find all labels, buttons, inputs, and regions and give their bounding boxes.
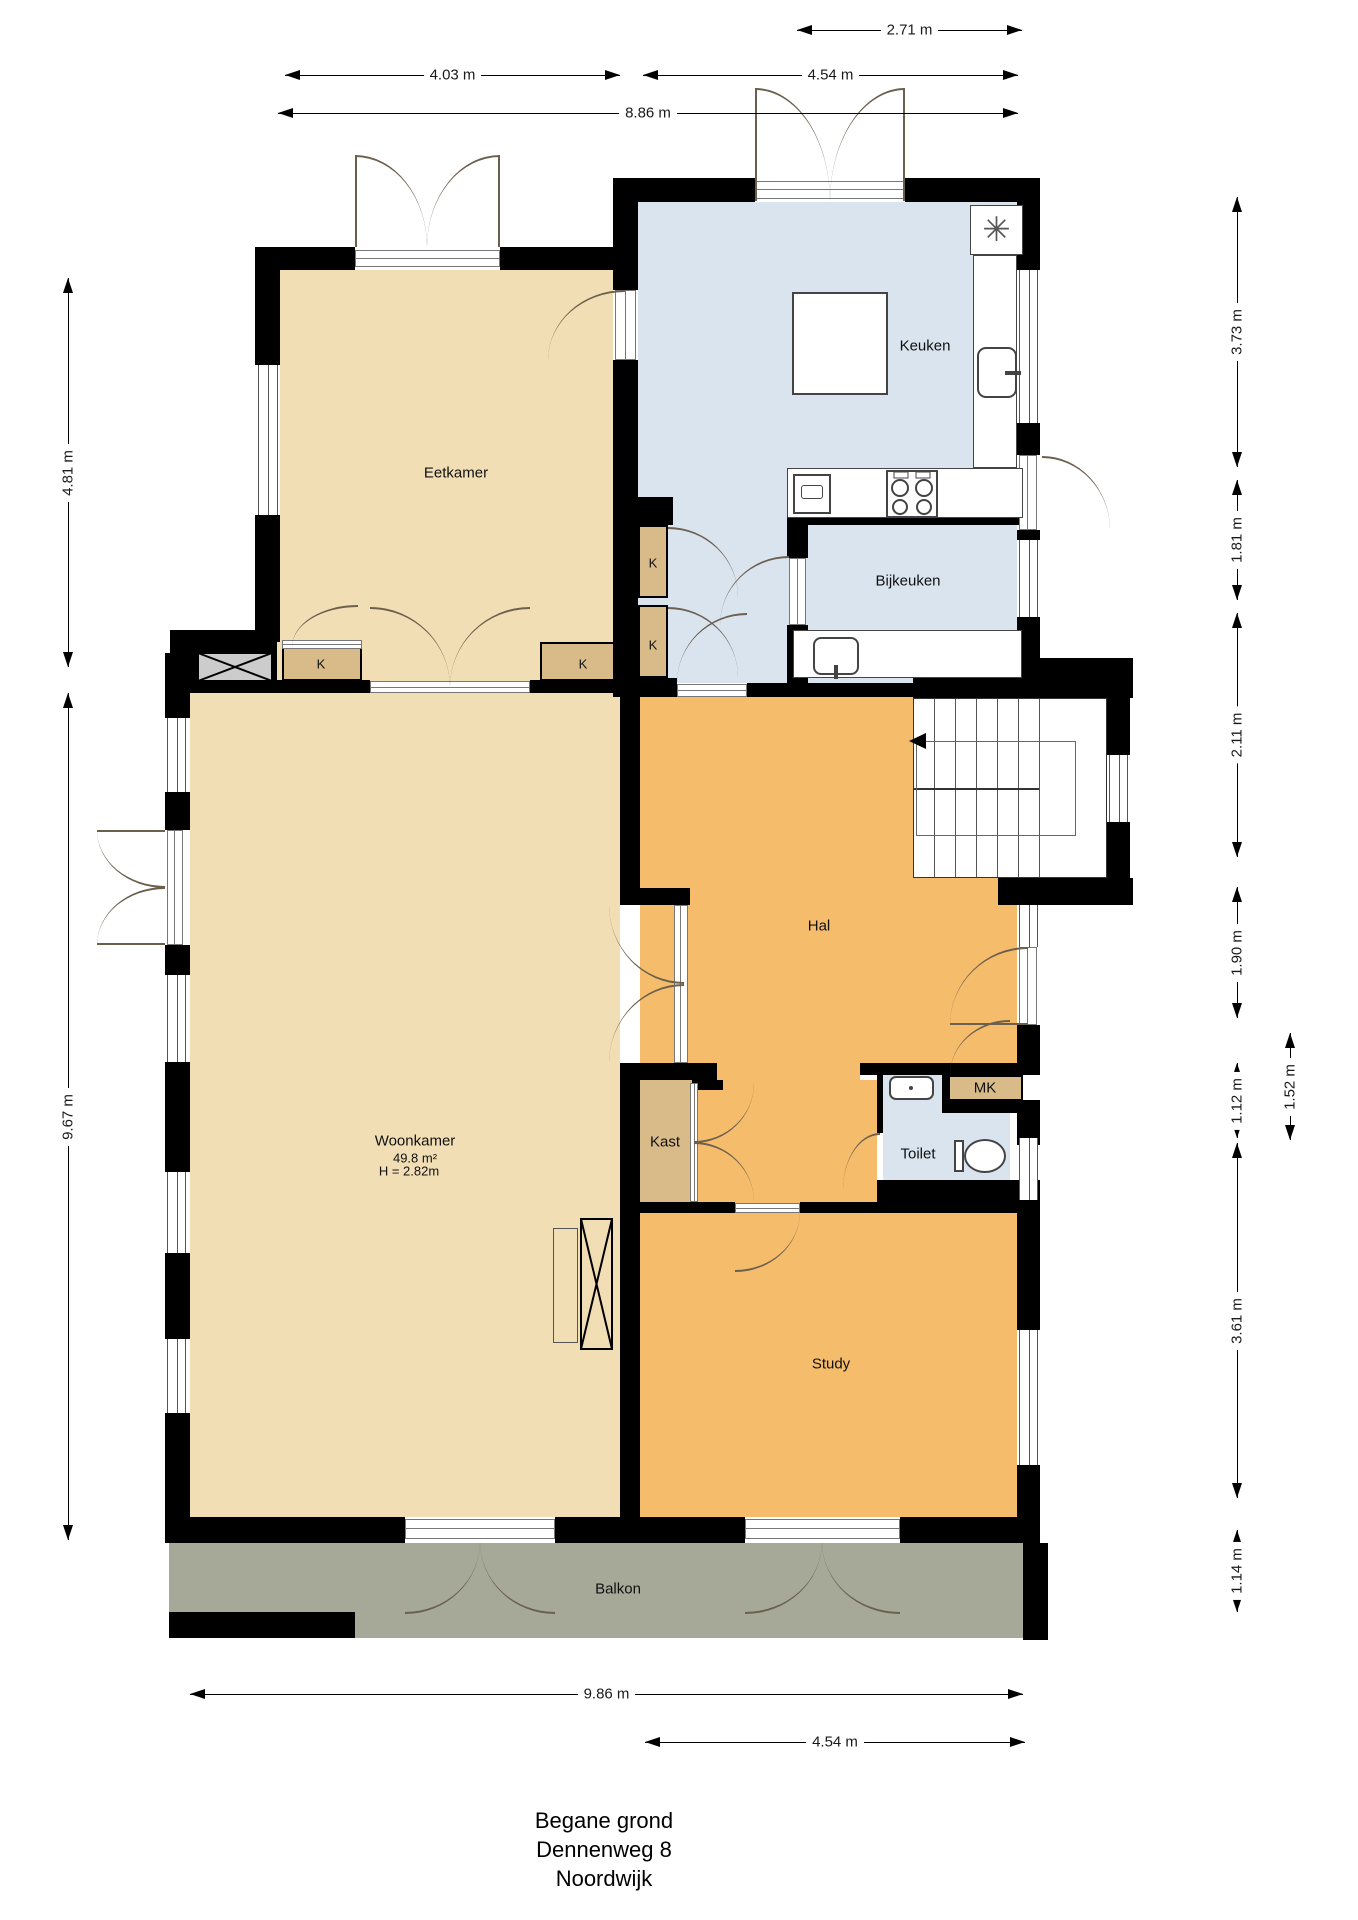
wall xyxy=(877,1075,883,1133)
dim-arrow xyxy=(63,278,73,293)
window xyxy=(167,1339,186,1413)
dim-arrow xyxy=(63,1525,73,1540)
door-arc xyxy=(609,905,684,984)
wall xyxy=(905,178,1040,202)
dim-label: 4.03 m xyxy=(424,67,482,84)
wall xyxy=(913,678,1040,698)
wall xyxy=(800,1202,1040,1213)
hob-icon xyxy=(886,470,938,518)
window xyxy=(1019,1330,1038,1465)
dimension-9_67: 9.67 m xyxy=(60,693,76,1540)
dim-arrow xyxy=(1232,197,1242,212)
room-label-keuken: Keuken xyxy=(900,338,951,355)
dim-arrow xyxy=(1232,842,1242,857)
dimension-8_86: 8.86 m xyxy=(278,105,1018,121)
wall xyxy=(620,1063,717,1080)
dim-label: 1.81 m xyxy=(1229,511,1246,569)
dim-arrow xyxy=(1010,1737,1025,1747)
room-label-woonkamer-height: H = 2.82m xyxy=(379,1164,439,1179)
wall xyxy=(165,653,190,718)
window xyxy=(167,718,186,792)
kitchen-island xyxy=(792,292,888,395)
door-opening xyxy=(789,558,806,625)
dim-arrow xyxy=(1285,1033,1295,1048)
tap-icon xyxy=(834,665,838,679)
drain-dot xyxy=(909,1086,913,1090)
dim-arrow xyxy=(1232,887,1242,902)
dim-arrow xyxy=(63,693,73,708)
dim-arrow xyxy=(645,1737,660,1747)
door-leaf xyxy=(498,155,500,247)
wall xyxy=(1107,822,1130,878)
wall xyxy=(620,1080,640,1202)
wall xyxy=(255,247,280,365)
dimension-3_61: 3.61 m xyxy=(1229,1143,1245,1498)
toilet-bowl-icon xyxy=(964,1139,1006,1173)
stair-direction-arrow xyxy=(909,733,926,749)
room-label-kast: Kast xyxy=(650,1134,680,1151)
dim-arrow xyxy=(797,25,812,35)
door-leaf xyxy=(97,943,165,945)
door-opening xyxy=(167,830,183,945)
room-label-toilet: Toilet xyxy=(900,1146,935,1163)
wall xyxy=(1017,1200,1040,1213)
dimension-1_12: 1.12 m xyxy=(1229,1063,1245,1138)
wall xyxy=(613,360,638,697)
dimension-1_52: 1.52 m xyxy=(1282,1033,1298,1140)
extractor-box: ✳ xyxy=(970,205,1023,255)
dimension-3_73: 3.73 m xyxy=(1229,197,1245,467)
floor-plan: ✳ Eetkamer Keuken Bijkeuken Hal Woonkame… xyxy=(0,0,1358,1920)
dim-arrow xyxy=(1232,613,1242,628)
wall xyxy=(1017,1465,1040,1517)
wall xyxy=(255,515,280,642)
room-woonkamer xyxy=(190,642,620,1517)
door-opening xyxy=(405,1519,555,1539)
closet-label-k: K xyxy=(649,556,658,571)
door-arc xyxy=(355,155,427,247)
dim-arrow xyxy=(1232,480,1242,495)
oven-icon xyxy=(793,474,831,514)
dimension-4_54-top: 4.54 m xyxy=(643,67,1018,83)
dim-arrow xyxy=(278,108,293,118)
dim-label: 2.11 m xyxy=(1229,707,1246,764)
title-city: Noordwijk xyxy=(535,1864,673,1893)
wall xyxy=(998,878,1133,905)
dimension-2_71: 2.71 m xyxy=(797,22,1022,38)
wall xyxy=(165,1413,190,1517)
dim-label: 8.86 m xyxy=(619,105,677,122)
wall xyxy=(638,178,755,202)
title-street: Dennenweg 8 xyxy=(535,1835,673,1864)
dim-label: 4.54 m xyxy=(806,1734,864,1751)
room-label-study: Study xyxy=(812,1356,850,1373)
door-leaf xyxy=(355,155,357,247)
dim-label: 2.71 m xyxy=(881,22,939,39)
stair-rail xyxy=(916,741,1076,836)
dimension-4_54-bottom: 4.54 m xyxy=(645,1734,1025,1750)
dim-arrow xyxy=(1008,1689,1023,1699)
wall xyxy=(808,517,1022,525)
wall xyxy=(1017,1213,1040,1330)
dim-arrow xyxy=(1232,1483,1242,1498)
wall xyxy=(165,1253,190,1339)
door-opening xyxy=(677,684,747,697)
wall xyxy=(165,792,190,830)
window xyxy=(1019,270,1038,423)
dimension-1_14: 1.14 m xyxy=(1229,1530,1245,1612)
wall xyxy=(165,945,190,975)
wall xyxy=(1017,530,1040,540)
dim-arrow xyxy=(1232,452,1242,467)
dim-arrow xyxy=(63,652,73,667)
dim-arrow xyxy=(1003,108,1018,118)
wall xyxy=(877,1180,1040,1202)
door-leaf xyxy=(950,1023,1028,1025)
toilet-tank xyxy=(954,1140,964,1172)
dim-arrow xyxy=(1232,585,1242,600)
door-opening xyxy=(745,1519,900,1539)
flue-box-icon xyxy=(197,652,273,682)
dim-label: 3.61 m xyxy=(1229,1292,1246,1350)
closet-label-k: K xyxy=(317,657,326,672)
wall xyxy=(620,697,640,888)
wall xyxy=(165,1517,405,1543)
door-arc xyxy=(427,155,500,247)
window xyxy=(167,1172,186,1253)
flue-box-icon xyxy=(580,1218,613,1350)
door-arc xyxy=(609,984,684,1063)
dim-label: 9.86 m xyxy=(578,1686,636,1703)
toilet-sink xyxy=(889,1076,934,1100)
wall xyxy=(620,888,690,905)
dim-label: 1.90 m xyxy=(1229,924,1246,982)
room-label-mk: MK xyxy=(974,1080,997,1097)
bijkeuken-sink xyxy=(813,637,859,675)
dim-arrow xyxy=(190,1689,205,1699)
window xyxy=(258,365,278,515)
dimension-9_86: 9.86 m xyxy=(190,1686,1023,1702)
dimension-1_81: 1.81 m xyxy=(1229,480,1245,600)
wall xyxy=(555,1517,745,1543)
window xyxy=(1019,905,1038,947)
wall xyxy=(620,1202,640,1517)
door-arc xyxy=(97,887,165,945)
dim-label: 4.54 m xyxy=(802,67,860,84)
window xyxy=(1019,540,1038,617)
dimension-4_03: 4.03 m xyxy=(285,67,620,83)
extractor-fan-icon: ✳ xyxy=(982,210,1011,250)
wall xyxy=(747,683,917,697)
door-arc xyxy=(97,830,165,888)
dim-label: 4.81 m xyxy=(60,444,77,502)
wall xyxy=(942,1100,1040,1113)
tap-icon xyxy=(1005,371,1021,375)
window xyxy=(1019,1138,1038,1200)
wall xyxy=(1017,423,1040,455)
closet-label-k: K xyxy=(649,638,658,653)
window xyxy=(1109,755,1128,822)
room-hal xyxy=(717,1063,860,1080)
dim-arrow xyxy=(1003,70,1018,80)
wall xyxy=(900,1517,1040,1543)
staircase xyxy=(913,698,1107,878)
dim-arrow xyxy=(643,70,658,80)
wall xyxy=(500,247,630,270)
dimension-4_81: 4.81 m xyxy=(60,278,76,667)
door-leaf xyxy=(97,830,165,832)
room-label-balkon: Balkon xyxy=(595,1581,641,1598)
wall xyxy=(1107,690,1130,755)
door-opening xyxy=(355,250,500,267)
kitchen-sink xyxy=(977,347,1017,398)
dimension-1_90: 1.90 m xyxy=(1229,887,1245,1018)
room-label-bijkeuken: Bijkeuken xyxy=(875,573,940,590)
wall xyxy=(613,178,638,290)
wall xyxy=(1023,1543,1048,1640)
dim-label: 3.73 m xyxy=(1229,303,1246,361)
wall xyxy=(1017,1025,1040,1063)
dim-arrow xyxy=(1007,25,1022,35)
room-label-eetkamer: Eetkamer xyxy=(424,465,488,482)
radiator xyxy=(553,1228,578,1343)
dim-label: 9.67 m xyxy=(60,1088,77,1146)
closet-label-k: K xyxy=(579,657,588,672)
wall xyxy=(165,1062,190,1172)
wall xyxy=(633,497,673,525)
door-arc xyxy=(1042,456,1110,530)
title-floor: Begane grond xyxy=(535,1806,673,1835)
wall xyxy=(633,678,677,697)
room-label-hal: Hal xyxy=(808,918,831,935)
dim-arrow xyxy=(1232,1143,1242,1158)
dim-label: 1.12 m xyxy=(1229,1072,1246,1130)
dimension-2_11: 2.11 m xyxy=(1229,613,1245,857)
room-hal xyxy=(913,878,998,905)
plan-title: Begane grond Dennenweg 8 Noordwijk xyxy=(535,1806,673,1893)
dim-label: 1.14 m xyxy=(1229,1542,1246,1600)
window xyxy=(167,975,186,1062)
dim-arrow xyxy=(285,70,300,80)
wall xyxy=(787,517,808,558)
dim-label: 1.52 m xyxy=(1282,1058,1299,1116)
balcony-parapet xyxy=(169,1612,355,1638)
room-label-woonkamer: Woonkamer xyxy=(375,1133,456,1150)
wall xyxy=(640,1202,735,1213)
dim-arrow xyxy=(605,70,620,80)
dim-arrow xyxy=(1285,1125,1295,1140)
dim-arrow xyxy=(1232,1003,1242,1018)
oven-door xyxy=(801,485,823,499)
